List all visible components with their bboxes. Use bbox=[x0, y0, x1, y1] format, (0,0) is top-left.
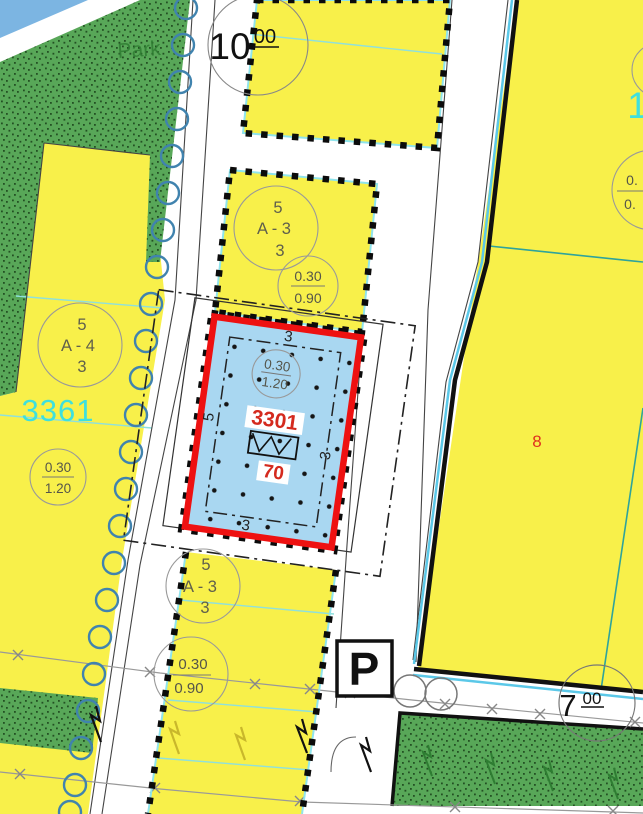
coef-bottom: 0.90 bbox=[294, 290, 321, 306]
coef-top: 0. bbox=[626, 172, 638, 188]
zone-l2: A - 4 bbox=[61, 337, 95, 355]
block-number-left: 3361 bbox=[22, 393, 95, 428]
zone-l1: 5 bbox=[77, 316, 86, 334]
coef-bottom: 0. bbox=[624, 196, 636, 212]
zone-l1: 5 bbox=[201, 556, 210, 574]
street-num: 7 bbox=[559, 688, 576, 723]
parcel-area: 70 bbox=[261, 461, 285, 485]
coef-top: 0.30 bbox=[45, 460, 71, 475]
zone-l3: 3 bbox=[275, 242, 284, 260]
parcel-top bbox=[243, 0, 450, 148]
park-label: Park bbox=[117, 37, 162, 63]
street-sup: 00 bbox=[583, 689, 602, 708]
green-area-bottom-right bbox=[391, 712, 643, 806]
zone-l3: 3 bbox=[77, 358, 86, 376]
street-sup: 00 bbox=[254, 26, 276, 48]
zone-l2: A - 3 bbox=[257, 220, 291, 238]
block-number-right-cut: 1 bbox=[627, 85, 643, 126]
zone-l2: A - 3 bbox=[183, 578, 217, 596]
zone-l3: 3 bbox=[200, 599, 209, 617]
zoning-map: 3 3 5 3 0.30 1.20 3301 70 5 A - 3 3 0.30… bbox=[0, 0, 643, 814]
coef-top: 0.30 bbox=[294, 268, 321, 284]
coef-top: 0.30 bbox=[178, 656, 207, 673]
parking-symbol: P bbox=[337, 641, 392, 696]
coef-bottom: 1.20 bbox=[45, 481, 71, 496]
parcel-a3-upper bbox=[215, 170, 377, 332]
street-num: 10 bbox=[209, 26, 250, 67]
zone-l1: 5 bbox=[273, 199, 282, 217]
map-canvas: 3 3 5 3 0.30 1.20 3301 70 5 A - 3 3 0.30… bbox=[0, 0, 643, 814]
parking-letter: P bbox=[349, 643, 380, 695]
coef-bottom: 0.90 bbox=[174, 680, 203, 697]
parcel-number-right: 8 bbox=[532, 432, 541, 451]
